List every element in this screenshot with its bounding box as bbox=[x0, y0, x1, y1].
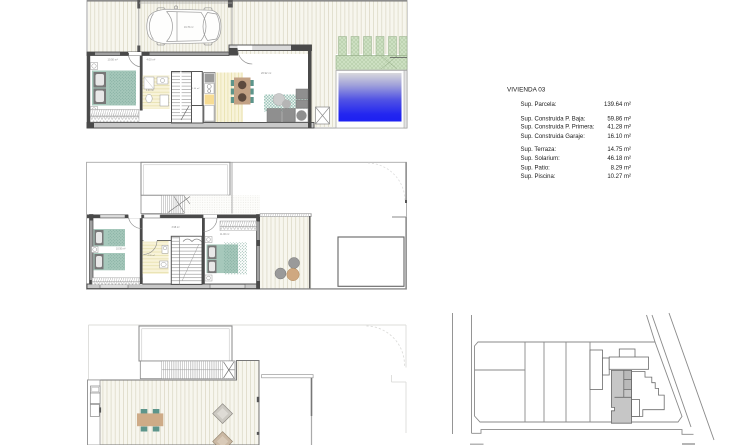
svg-text:Sup. Solarium:: Sup. Solarium: bbox=[521, 156, 561, 162]
svg-text:14.75 m²: 14.75 m² bbox=[607, 147, 631, 153]
svg-text:Sup. Terraza:: Sup. Terraza: bbox=[521, 147, 557, 153]
svg-text:Sup. Parcela:: Sup. Parcela: bbox=[521, 102, 557, 108]
svg-text:Sup. Construida P. Baja:: Sup. Construida P. Baja: bbox=[521, 116, 586, 122]
svg-text:10.50 m²: 10.50 m² bbox=[108, 58, 118, 62]
svg-text:20.92 m²: 20.92 m² bbox=[261, 71, 271, 75]
svg-text:16.10 m²: 16.10 m² bbox=[607, 134, 631, 140]
svg-text:Sup. Construida Garaje:: Sup. Construida Garaje: bbox=[521, 134, 586, 140]
svg-text:10.50 m²: 10.50 m² bbox=[116, 248, 126, 251]
svg-text:10.27 m²: 10.27 m² bbox=[607, 174, 631, 180]
svg-text:1.44 m²: 1.44 m² bbox=[192, 87, 200, 90]
svg-text:46.18 m²: 46.18 m² bbox=[607, 156, 631, 162]
svg-text:4.00 m²: 4.00 m² bbox=[147, 58, 156, 62]
svg-text:Sup. Piscina:: Sup. Piscina: bbox=[521, 174, 556, 180]
svg-text:8.29 m²: 8.29 m² bbox=[611, 165, 631, 171]
svg-text:Sup. Patio:: Sup. Patio: bbox=[521, 165, 551, 171]
svg-text:4.20 m²: 4.20 m² bbox=[148, 254, 156, 257]
svg-text:VIVIENDA 03: VIVIENDA 03 bbox=[507, 87, 546, 94]
svg-text:139.64 m²: 139.64 m² bbox=[604, 102, 631, 108]
svg-text:Sup. Construida P. Primera:: Sup. Construida P. Primera: bbox=[521, 125, 595, 131]
svg-text:16.76 m²: 16.76 m² bbox=[184, 26, 194, 29]
svg-text:4.30 m²: 4.30 m² bbox=[146, 89, 154, 92]
svg-text:11.00 m²: 11.00 m² bbox=[220, 233, 229, 236]
svg-text:3.98 m²: 3.98 m² bbox=[172, 226, 180, 229]
svg-text:41.28 m²: 41.28 m² bbox=[607, 125, 631, 131]
svg-text:59.86 m²: 59.86 m² bbox=[607, 116, 631, 122]
